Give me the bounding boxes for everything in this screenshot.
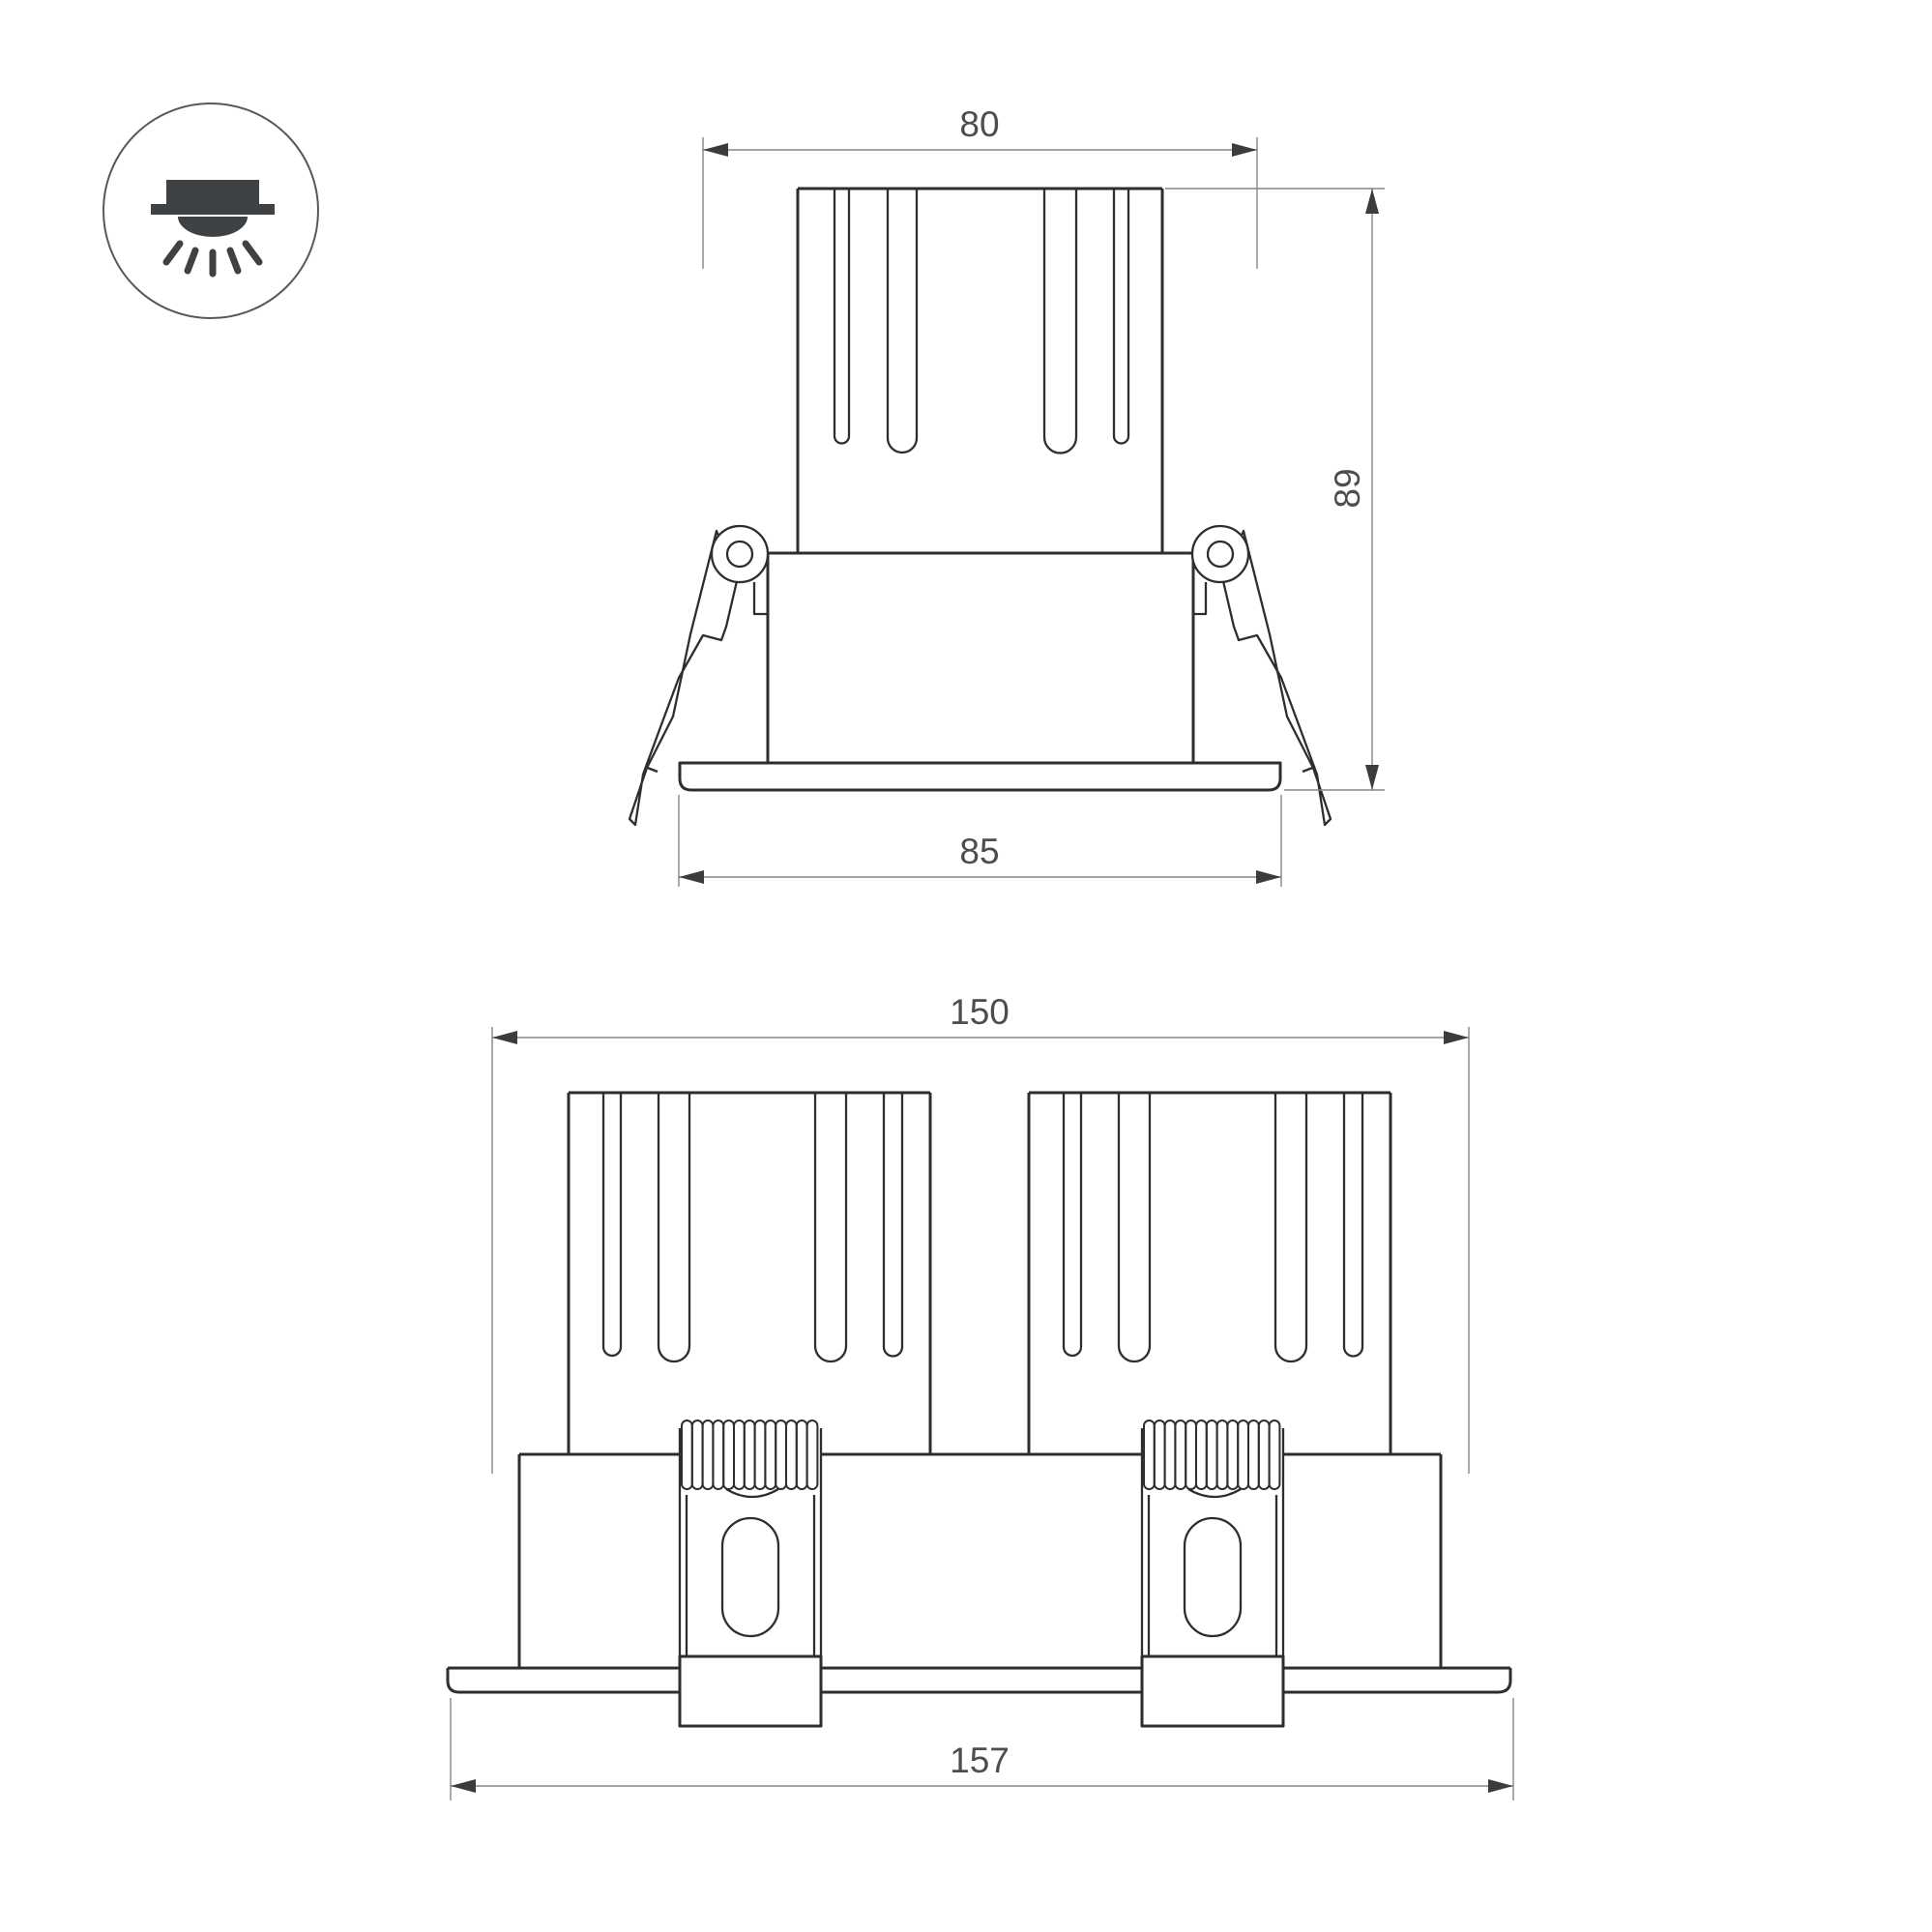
- heatsink-module-2: [1029, 1093, 1390, 1453]
- double-housing-body: [519, 1454, 1441, 1668]
- light-rays: [166, 244, 259, 274]
- heatsink-module-1: [569, 1093, 930, 1453]
- heatsink: [798, 189, 1162, 553]
- single-module-view: [629, 189, 1331, 825]
- dim-label-top-width: 80: [959, 104, 999, 144]
- double-module-view: [448, 1093, 1510, 1726]
- double-trim-flange: [448, 1668, 1510, 1692]
- dim-label-flange-width: 85: [959, 832, 999, 871]
- lamp-flange: [151, 204, 275, 215]
- spring-clip-right: [1192, 526, 1331, 825]
- arrow-right-icon: [1444, 1031, 1469, 1044]
- arrow-left-icon: [679, 870, 704, 884]
- arrow-right-icon: [1488, 1779, 1513, 1793]
- arrow-right-icon: [1232, 143, 1257, 157]
- arrow-left-icon: [492, 1031, 517, 1044]
- dim-label-height: 89: [1328, 468, 1367, 508]
- arrow-left-icon: [703, 143, 728, 157]
- dim-label-body-width: 150: [950, 992, 1010, 1032]
- mount-mechanism-left: [680, 1420, 821, 1726]
- arrow-right-icon: [1256, 870, 1281, 884]
- arrow-up-icon: [1365, 189, 1379, 214]
- lamp-body: [166, 180, 259, 206]
- drawing-page: 80 89 85: [0, 0, 1932, 1932]
- dim-top-width: [703, 137, 1257, 269]
- double-view-dimensions: [451, 1027, 1513, 1800]
- recessed-light-icon: [103, 103, 318, 318]
- dimension-drawing: 80 89 85: [0, 0, 1932, 1932]
- lamp-dome: [178, 217, 248, 237]
- spring-clip-left: [629, 526, 768, 825]
- arrow-left-icon: [451, 1779, 476, 1793]
- dim-label-overall-flange-width: 157: [950, 1741, 1010, 1780]
- mount-mechanism-right: [1142, 1420, 1283, 1726]
- arrow-down-icon: [1365, 765, 1379, 790]
- trim-flange: [680, 763, 1280, 790]
- housing-body: [768, 553, 1193, 763]
- downlight-glyph: [151, 180, 275, 237]
